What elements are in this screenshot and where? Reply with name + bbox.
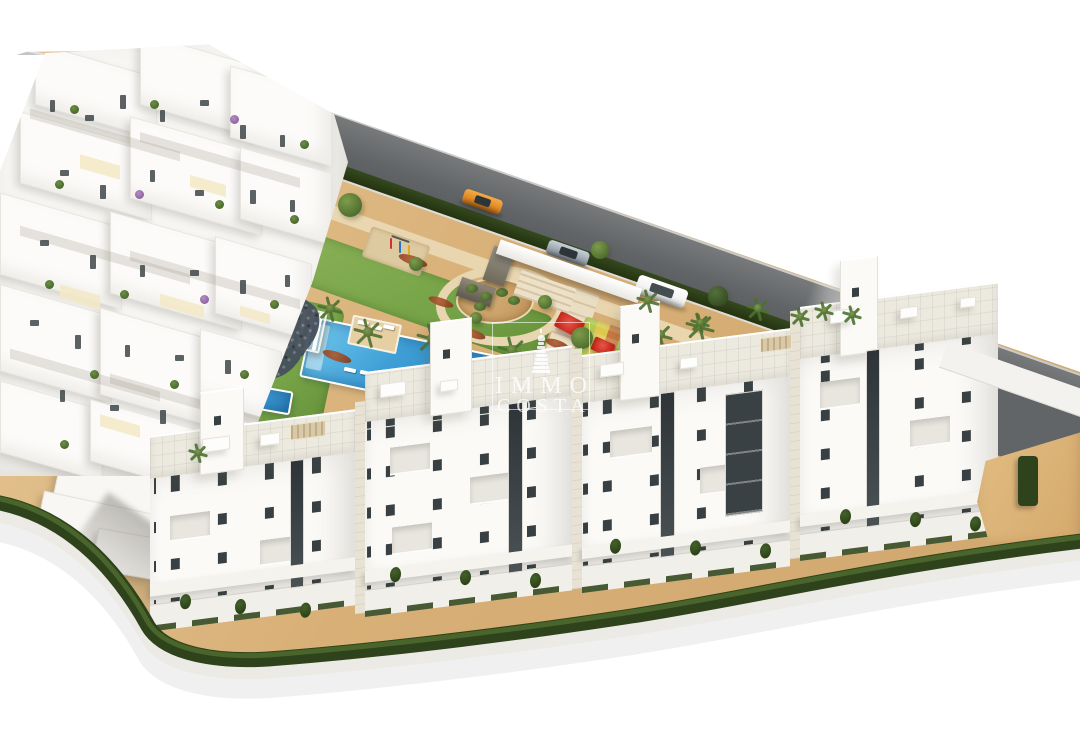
stair-tower [430, 317, 472, 416]
lighthouse-mast [540, 329, 542, 333]
palm-crown [821, 307, 828, 314]
window [100, 185, 106, 199]
stair-tower [620, 301, 660, 401]
palm-tree [693, 315, 707, 329]
watermark-brand-bottom: COSTA [497, 397, 591, 416]
render-canvas: IMMO COSTA [0, 0, 1080, 750]
front-garden-tree [300, 602, 311, 618]
palm-tree [191, 445, 205, 459]
palm-tree [817, 303, 831, 317]
stair-glazing [866, 349, 880, 528]
lighthouse-stripe [538, 342, 544, 345]
palm-tree [793, 309, 807, 323]
rooftop-structure [680, 356, 698, 369]
recessed-balconies [725, 390, 763, 517]
courtyard-hedge [1018, 456, 1038, 506]
stair-glazing [660, 391, 675, 558]
window [125, 345, 130, 357]
lighthouse-stripe [536, 350, 546, 353]
balcony [170, 511, 210, 542]
lighthouse-icon [532, 329, 550, 373]
balcony [820, 377, 860, 410]
window [60, 390, 65, 402]
south-apartment-complex [140, 0, 1040, 700]
terrace-plant [120, 290, 129, 299]
palm-crown [754, 304, 762, 312]
window [90, 255, 96, 269]
balcony [610, 426, 652, 459]
watermark: IMMO COSTA [492, 322, 590, 410]
rooftop-structure [900, 306, 918, 319]
terrace-plant [90, 370, 99, 379]
stair-tower [840, 255, 878, 357]
window [40, 240, 49, 246]
lighthouse-stripe [537, 346, 545, 349]
palm-tree [750, 300, 766, 316]
watermark-brand-top: IMMO [495, 376, 595, 397]
lighthouse-stripe [536, 354, 547, 357]
window [110, 405, 119, 411]
palm-crown [644, 296, 652, 304]
lighthouse-stripe [533, 366, 549, 369]
palm-tree [845, 307, 859, 321]
palm-crown [697, 319, 704, 326]
terrace-plant [45, 280, 54, 289]
balcony [390, 443, 430, 476]
alley-path [355, 401, 365, 614]
lighthouse-dome [538, 335, 545, 341]
balcony [910, 416, 950, 449]
rooftop-structure [960, 296, 976, 308]
palm-tree [640, 292, 656, 308]
stair-glazing [508, 402, 523, 574]
stair-tower [200, 387, 244, 476]
palm-crown [195, 449, 202, 456]
window [75, 335, 81, 349]
window [30, 320, 39, 326]
window [85, 115, 94, 121]
lighthouse-stripe [534, 362, 548, 365]
palm-crown [849, 311, 856, 318]
rooftop-structure [440, 379, 458, 392]
terrace-plant [70, 105, 79, 114]
palm-crown [797, 313, 804, 320]
balcony [392, 522, 432, 555]
lighthouse-stripe [535, 358, 548, 361]
window [120, 95, 126, 109]
window [60, 170, 69, 176]
terrace-plant [55, 180, 64, 189]
rooftop-structure [260, 432, 280, 447]
terrace-plant [60, 440, 69, 449]
window [50, 100, 55, 112]
